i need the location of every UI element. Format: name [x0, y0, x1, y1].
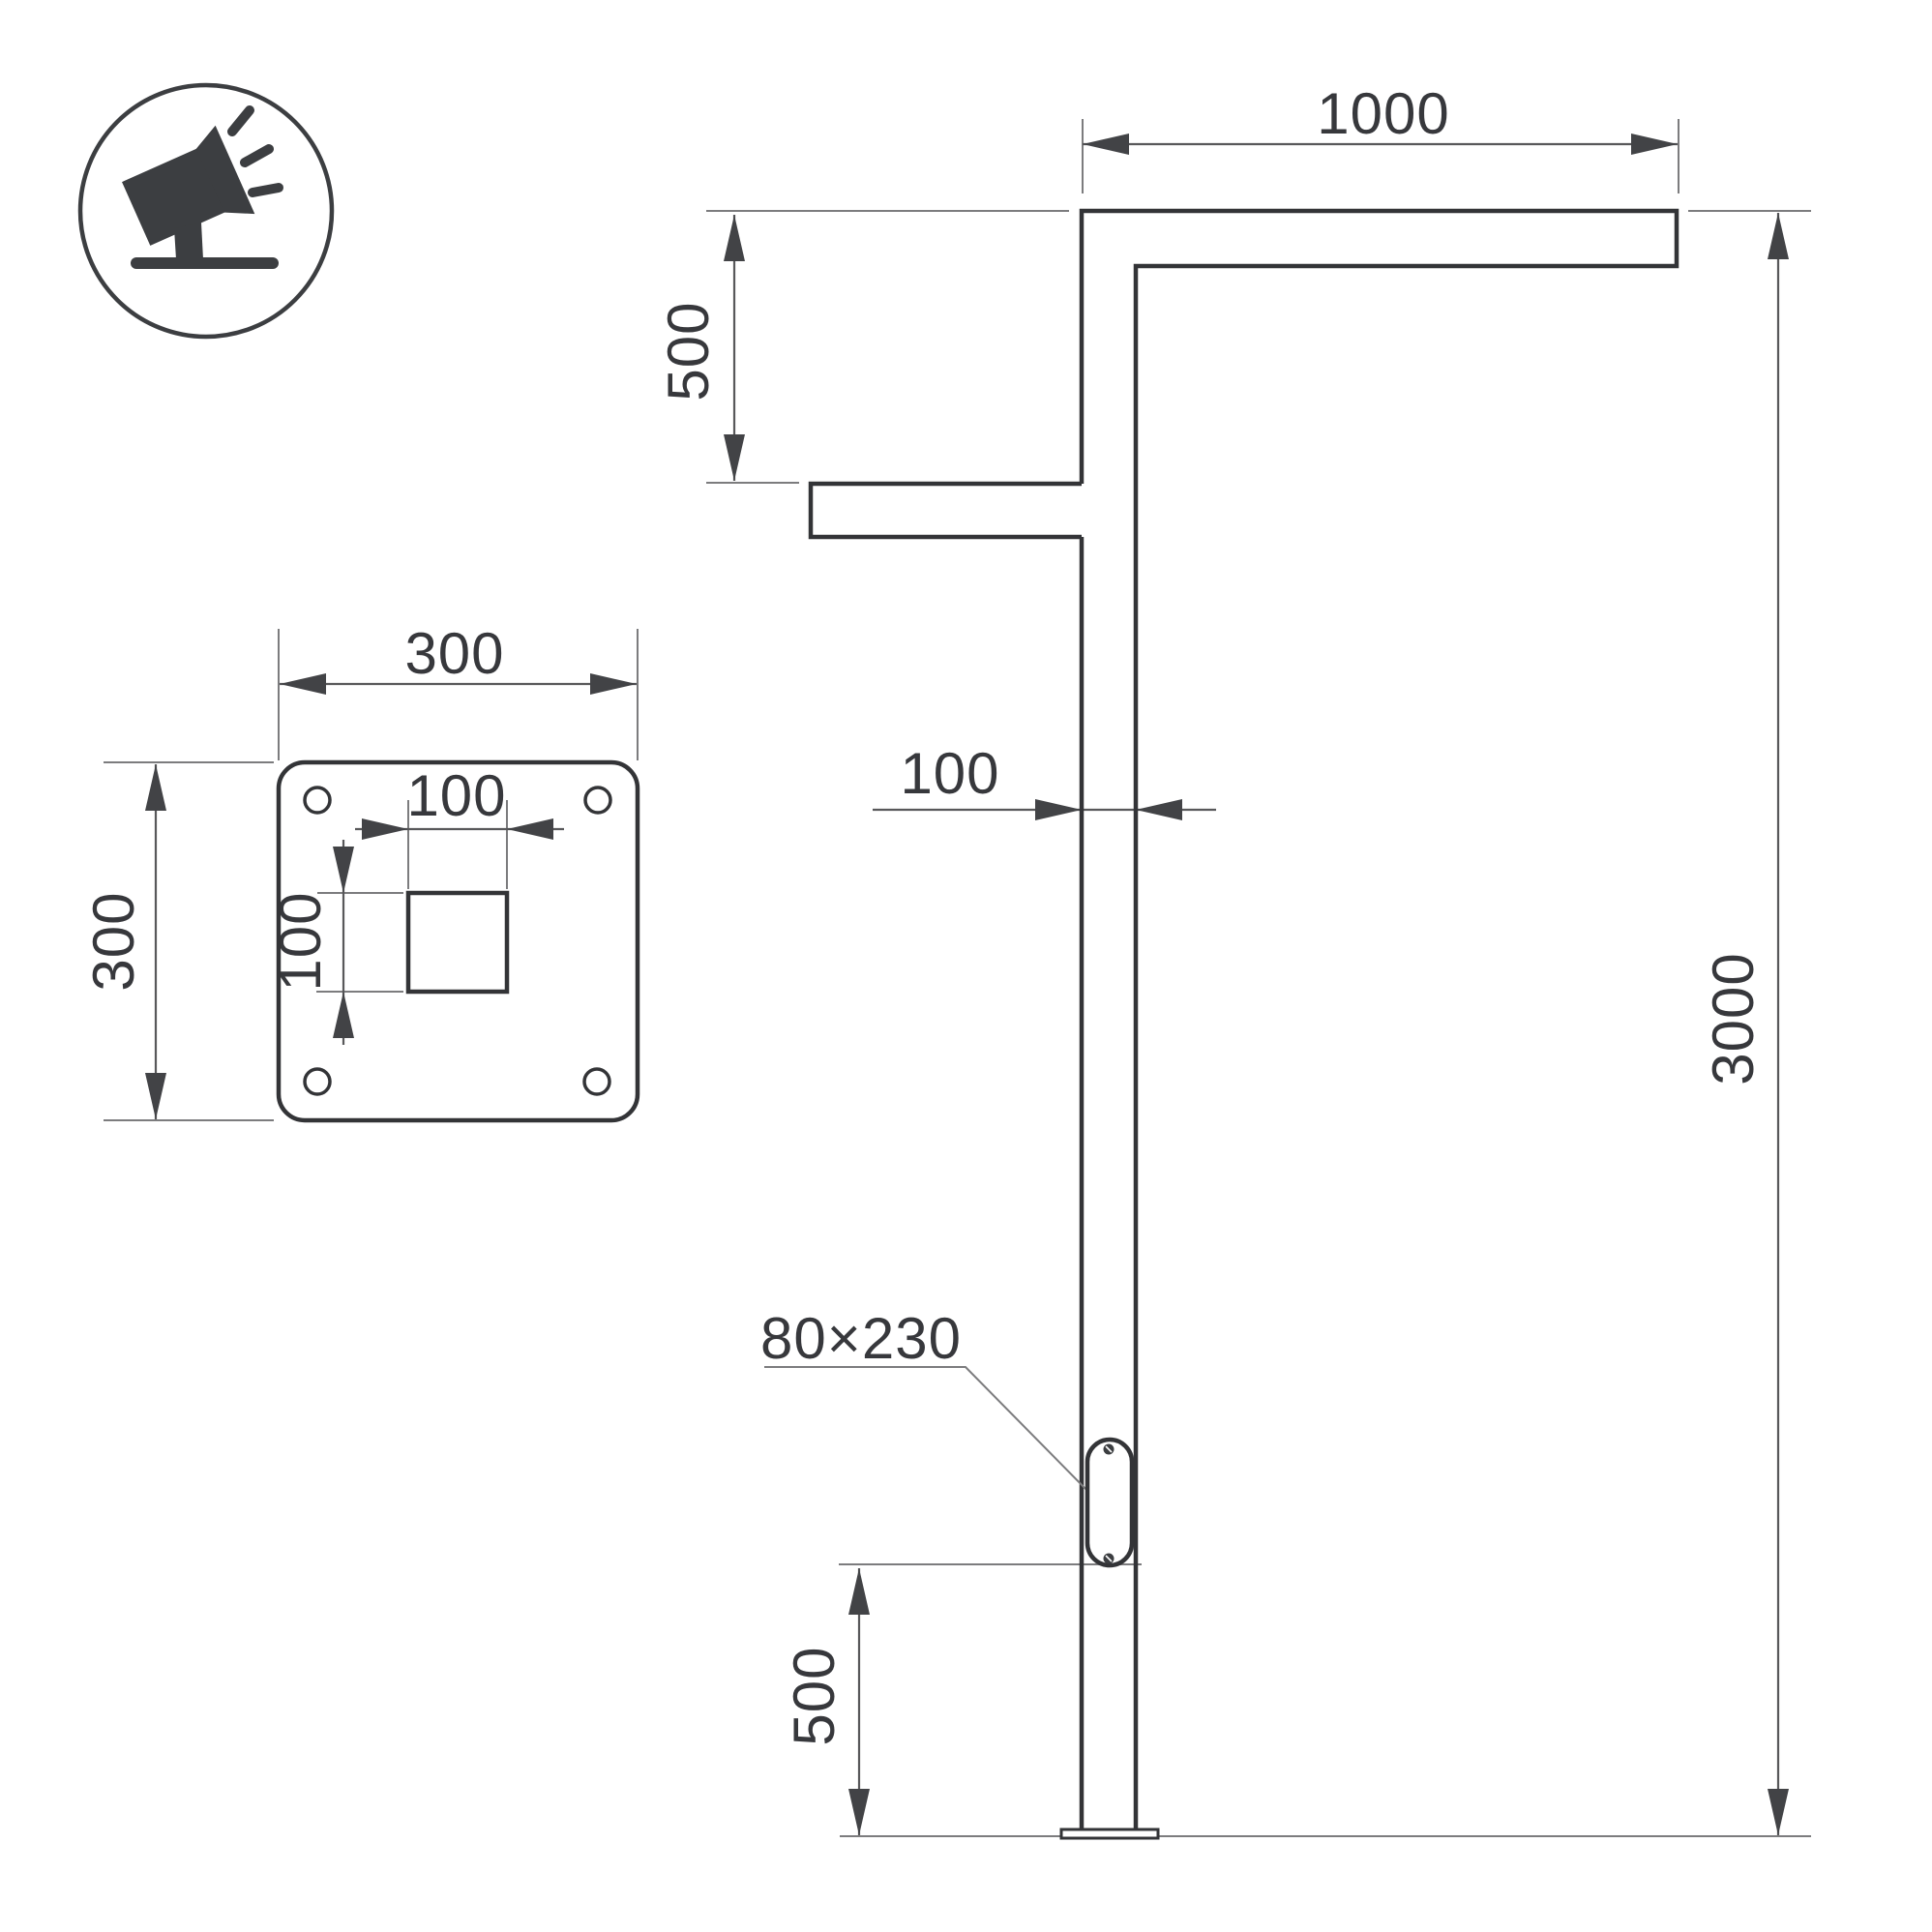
bolt-hole-bottom-right: [584, 1069, 609, 1094]
dim-plate-height: 300: [81, 762, 274, 1120]
dim-arm-length: 1000: [1083, 81, 1679, 193]
dim-plate-width-label: 300: [404, 621, 504, 686]
dim-plate-width: 300: [279, 621, 638, 760]
floodlight-stand: [174, 223, 203, 259]
dim-plate-height-label: 300: [81, 891, 146, 991]
dim-cutout-width: 100: [355, 763, 564, 889]
base-flange: [1061, 1829, 1158, 1838]
dim-total-height-label: 3000: [1701, 952, 1766, 1085]
bolt-hole-top-left: [305, 788, 330, 813]
plate-bolt-holes: [305, 788, 610, 1094]
dim-door-height: 500: [782, 1564, 1142, 1835]
pole-outline: [811, 211, 1677, 1829]
access-door: [1087, 1440, 1132, 1565]
dim-arm-drop-label: 500: [656, 301, 721, 401]
dim-cutout-height: 100: [268, 840, 403, 1045]
dim-door-height-label: 500: [782, 1646, 847, 1745]
street-light-pole-drawing: 300 300 100 100: [0, 0, 1932, 1932]
bolt-hole-top-right: [585, 788, 610, 813]
door-leader-line: [764, 1367, 1096, 1500]
dim-pole-width-label: 100: [900, 741, 999, 806]
floodlight-icon: [80, 85, 332, 337]
floodlight-base-bar: [131, 257, 279, 269]
dim-cutout-width-label: 100: [406, 763, 506, 828]
dim-pole-width: 100: [873, 741, 1216, 820]
dim-total-height: 3000: [1688, 211, 1811, 1835]
plate-center-cutout: [408, 893, 507, 992]
door-size-label: 80×230: [760, 1306, 962, 1371]
pole-elevation-view: 1000 500 100 3000 500: [656, 81, 1811, 1838]
base-plate-view: 300 300 100 100: [81, 621, 638, 1120]
dim-arm-drop: 500: [656, 211, 1069, 483]
technical-drawing-page: 300 300 100 100: [0, 0, 1932, 1932]
door-callout: 80×230: [760, 1306, 1096, 1500]
door-outline: [1087, 1440, 1132, 1565]
arm-drop-extension-lines: [706, 211, 1069, 483]
bolt-hole-bottom-left: [305, 1069, 330, 1094]
dim-arm-length-label: 1000: [1317, 81, 1449, 146]
